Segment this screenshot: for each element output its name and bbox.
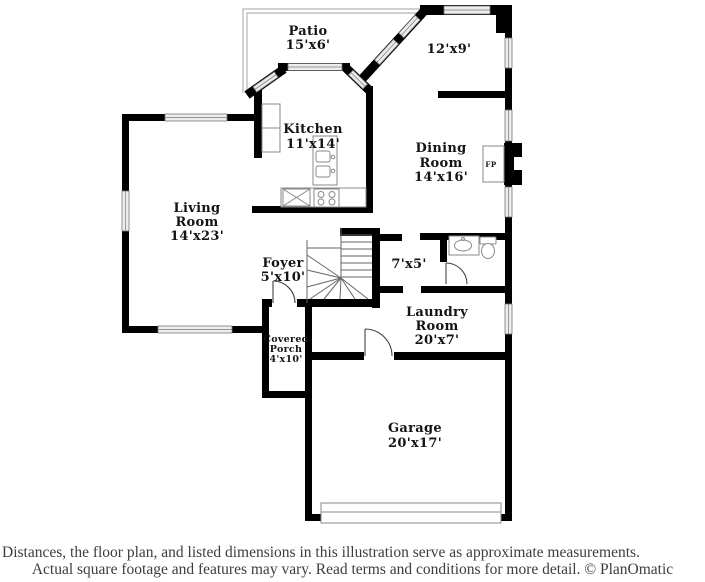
room-dims: 4'x10' [269, 354, 302, 365]
fireplace-bump-bottom [512, 170, 522, 185]
stair-winder [340, 278, 341, 299]
nook-diagonal-window-2 [399, 15, 420, 37]
stair-winder [341, 278, 368, 299]
kitchen-dining-wall [366, 86, 373, 213]
nook-diagonal-window-1 [375, 39, 399, 64]
fireplace: FP [483, 146, 504, 182]
living-top-window [165, 114, 227, 121]
kitchen-left-wall [254, 86, 262, 158]
room-label-breakfast-nook: 12'x9' [427, 42, 472, 57]
disclaimer-line-2: Actual square footage and features may v… [0, 562, 705, 578]
room-name: Laundry [406, 305, 468, 320]
room-name: Room [175, 215, 218, 230]
garage-top-wall-left [312, 352, 364, 360]
walls [122, 5, 522, 521]
dishwasher-icon [283, 189, 310, 206]
stove-icon [314, 189, 339, 207]
laundry-right-window [505, 304, 512, 334]
room-label-patio: Patio 15'x6' [286, 24, 331, 53]
nook-bottom-wall [438, 91, 505, 98]
room-label-hallway: 7'x5' [391, 257, 426, 272]
laundry-top-wall-left [375, 286, 403, 293]
room-dims: 12'x9' [427, 42, 472, 57]
room-label-laundry-room: Laundry Room 20'x7' [406, 305, 468, 348]
room-name: Kitchen [283, 122, 343, 137]
bathroom-sink-icon [449, 236, 479, 255]
fireplace-bump-top [512, 143, 522, 157]
room-name: Foyer [262, 256, 303, 271]
room-name: Garage [388, 421, 442, 436]
staircase [307, 228, 372, 303]
room-dims: 20'x17' [388, 436, 442, 451]
nook-top-window [444, 6, 490, 14]
room-dims: 20'x7' [415, 333, 460, 348]
hall-top-wall [373, 234, 402, 241]
floor-plan-page: FP Patio 15'x6' 12'x9' Kitchen 11'x14' D… [0, 0, 705, 582]
front-wall-right [297, 299, 373, 307]
stair-winder [324, 278, 341, 299]
stair-winder [310, 278, 341, 299]
porch-bottom-wall [262, 391, 312, 398]
powder-room-fixtures [449, 236, 496, 259]
room-dims: 5'x10' [261, 270, 306, 285]
room-name: Living [174, 201, 221, 216]
powder-room-door [446, 263, 467, 284]
right-exterior-wall [505, 5, 512, 521]
room-name: Dining [416, 141, 467, 156]
kitchen-fixtures [262, 104, 366, 207]
room-label-garage: Garage 20'x17' [388, 421, 442, 451]
stair-winder [341, 278, 355, 299]
toilet-icon [480, 237, 496, 259]
room-dims: 7'x5' [391, 257, 426, 272]
room-label-kitchen: Kitchen 11'x14' [283, 122, 343, 152]
laundry-garage-door [365, 329, 392, 356]
porch-left-wall [262, 299, 269, 398]
stair-winder [307, 278, 341, 287]
bay-left-window [253, 72, 278, 92]
bay-top-window [288, 64, 342, 71]
stair-winder [307, 255, 341, 278]
room-dims: 11'x14' [286, 137, 340, 152]
garage-top-wall-right [394, 352, 505, 360]
floor-plan-drawing: FP Patio 15'x6' 12'x9' Kitchen 11'x14' D… [0, 0, 705, 545]
laundry-top-wall-right [421, 286, 505, 293]
dining-right-window-upper [505, 110, 512, 141]
garage-door [321, 503, 501, 523]
room-dims: 15'x6' [286, 38, 331, 53]
room-label-covered-porch: Covered Porch 4'x10' [263, 334, 308, 365]
room-name: Room [419, 156, 462, 171]
powder-left-wall [440, 240, 447, 262]
room-name: Patio [289, 24, 328, 39]
room-label-living-room: Living Room 14'x23' [170, 201, 224, 244]
fireplace-label: FP [485, 160, 496, 169]
room-label-dining-room: Dining Room 14'x16' [414, 141, 468, 185]
living-left-window [122, 191, 129, 231]
room-name: Room [415, 319, 458, 334]
disclaimer-line-1: Distances, the floor plan, and listed di… [2, 545, 705, 561]
nook-right-window [505, 38, 512, 68]
room-dims: 14'x23' [170, 229, 224, 244]
room-label-foyer: Foyer 5'x10' [261, 256, 306, 285]
living-bottom-window [158, 326, 232, 333]
dining-right-window-lower [505, 187, 512, 217]
room-dims: 14'x16' [414, 170, 468, 185]
